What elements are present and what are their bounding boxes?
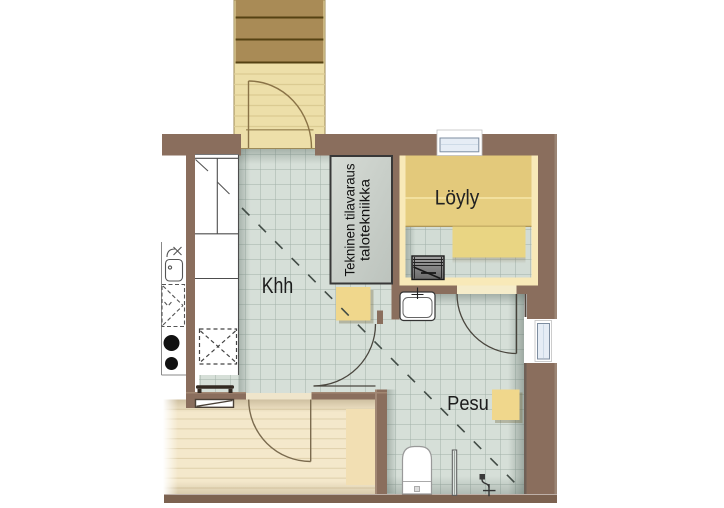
svg-text:Tekninen tilavaraus: Tekninen tilavaraus [343,163,358,276]
svg-text:Khh: Khh [262,273,294,298]
svg-text:Löyly: Löyly [435,186,480,210]
svg-text:Pesu: Pesu [447,392,489,415]
svg-text:talotekniikka: talotekniikka [358,178,373,261]
